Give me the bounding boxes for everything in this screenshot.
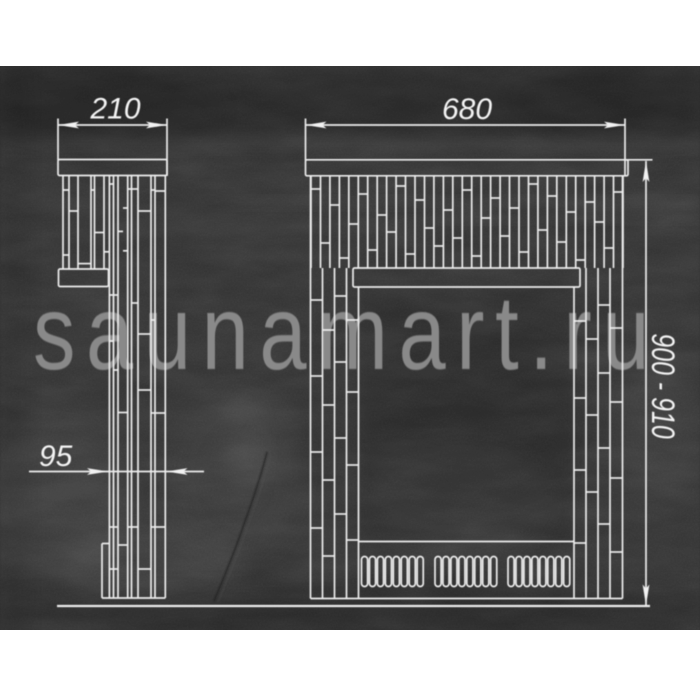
svg-text:210: 210 (89, 93, 140, 126)
svg-text:900 - 910: 900 - 910 (644, 333, 680, 438)
svg-text:95: 95 (39, 440, 73, 473)
svg-text:680: 680 (442, 93, 492, 126)
